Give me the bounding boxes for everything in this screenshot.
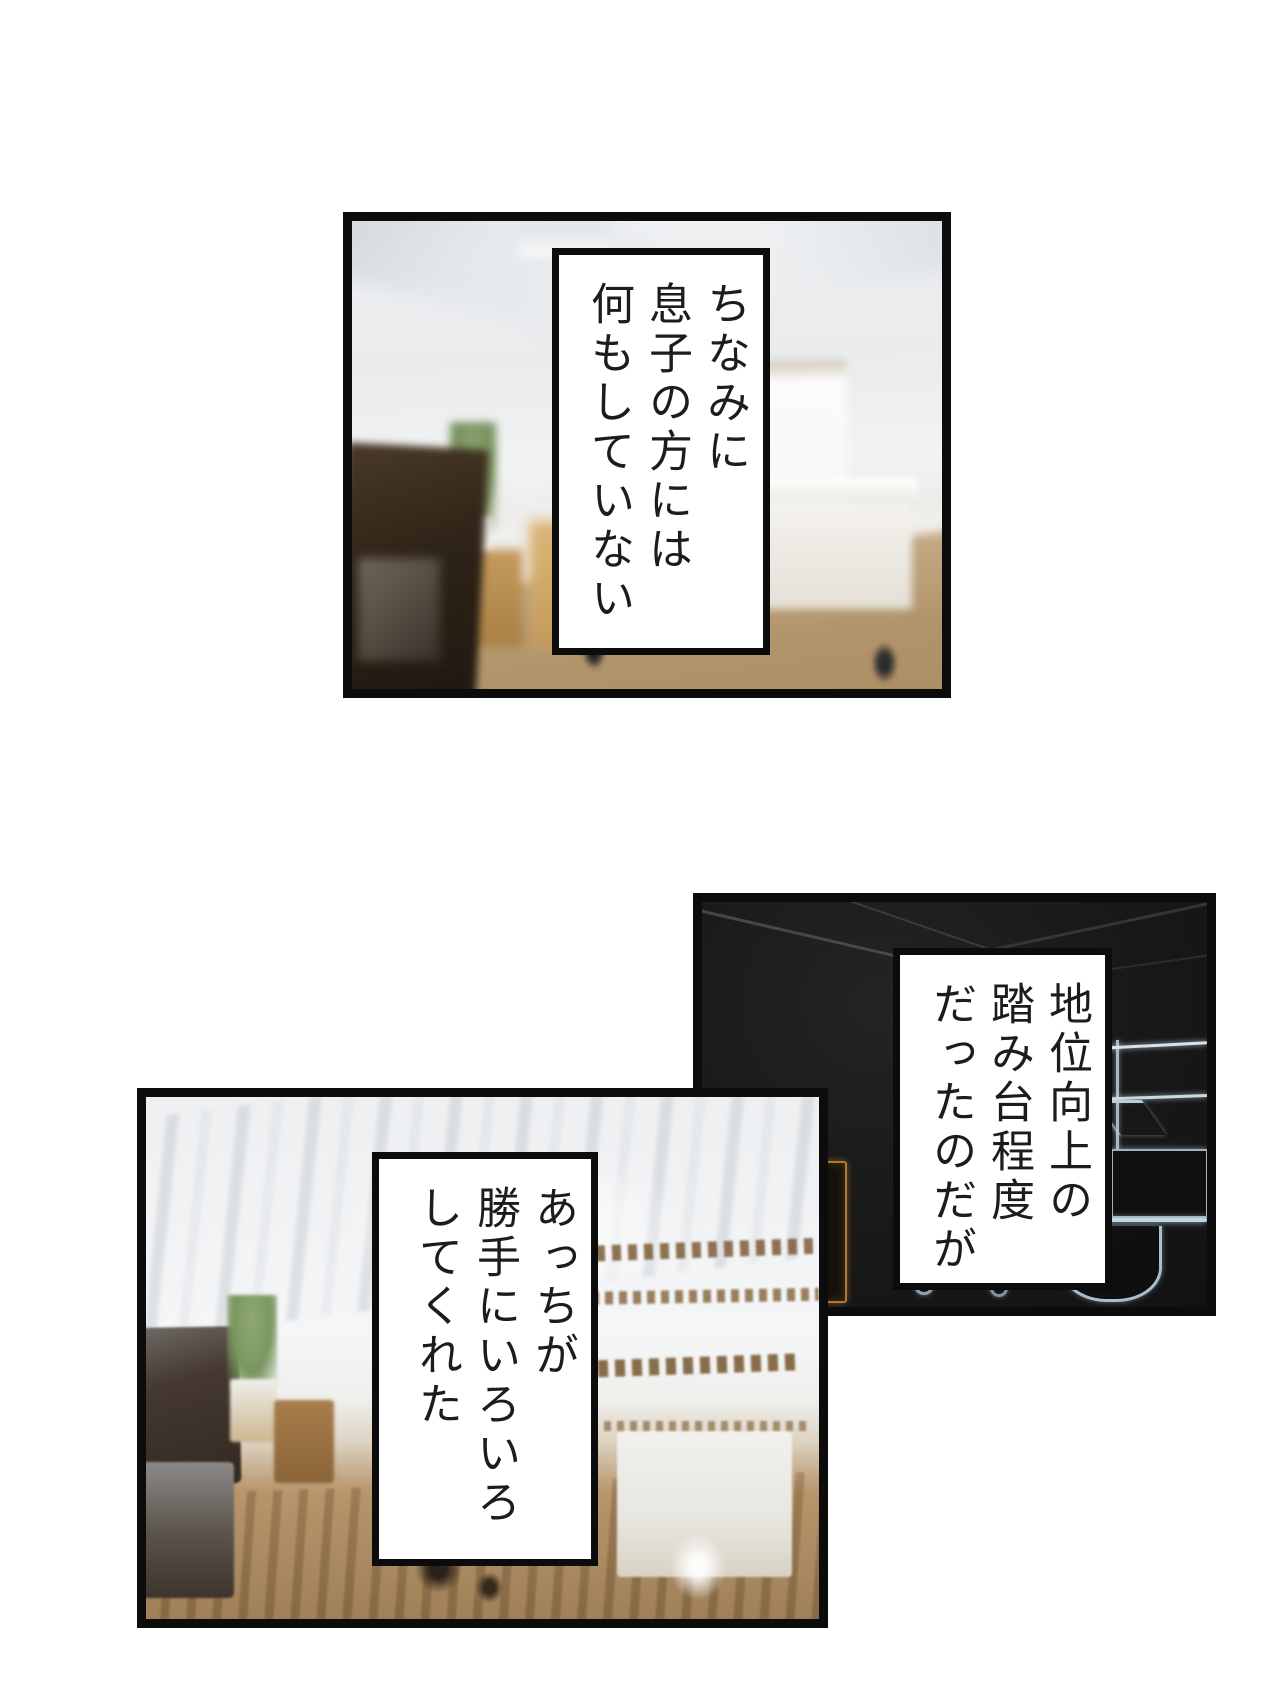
caster-wheel-dot bbox=[871, 642, 898, 684]
plant-silhouette bbox=[227, 1295, 277, 1389]
narration-box-1: ちなみに 息子の方には 何もしていない bbox=[552, 248, 770, 655]
panel-distorted-room: あっちが 勝手にいろいろ してくれた bbox=[137, 1088, 828, 1628]
narration-text-2: 地位向上の 踏み台程度 だったのだが bbox=[900, 955, 1105, 1283]
panel-top-living-room: ちなみに 息子の方には 何もしていない bbox=[343, 212, 951, 698]
narration-text-3: あっちが 勝手にいろいろ してくれた bbox=[379, 1159, 591, 1559]
monitor-outline-glow bbox=[1111, 1149, 1208, 1218]
narration-box-3: あっちが 勝手にいろいろ してくれた bbox=[372, 1152, 598, 1566]
floor-glint bbox=[671, 1535, 725, 1598]
tv-screen-glint bbox=[358, 558, 441, 661]
desk-speckle-edge bbox=[604, 1421, 806, 1431]
desk-body-silhouette bbox=[759, 502, 912, 610]
floor-debris bbox=[476, 1572, 503, 1603]
narration-box-2: 地位向上の 踏み台程度 だったのだが bbox=[893, 948, 1112, 1290]
manga-page: { "page": { "type": "manga-page", "backg… bbox=[0, 0, 1267, 1687]
pot-stand-silhouette bbox=[274, 1400, 335, 1484]
dark-cabinet-lower bbox=[139, 1462, 233, 1598]
narration-text-1: ちなみに 息子の方には 何もしていない bbox=[559, 255, 763, 648]
plant-pot-silhouette bbox=[230, 1379, 277, 1442]
